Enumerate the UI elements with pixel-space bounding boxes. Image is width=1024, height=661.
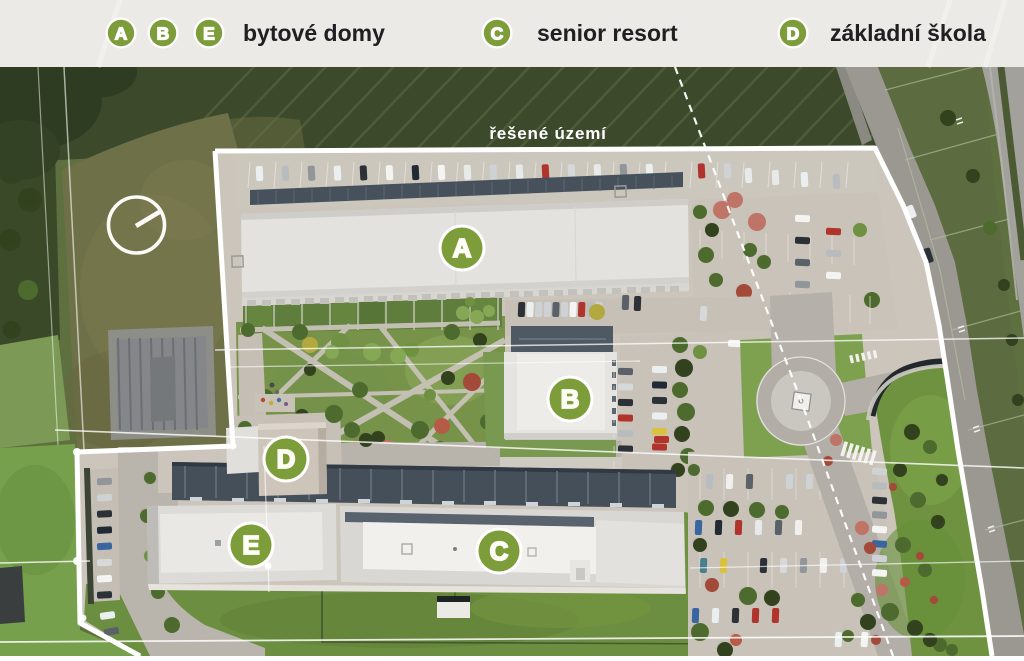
svg-text:bytové domy: bytové domy <box>243 20 385 46</box>
svg-text:D: D <box>787 24 800 44</box>
svg-text:B: B <box>561 384 580 414</box>
svg-text:A: A <box>115 24 128 44</box>
svg-text:C: C <box>491 24 504 44</box>
svg-text:E: E <box>242 530 259 560</box>
svg-text:A: A <box>453 233 472 263</box>
svg-text:E: E <box>203 24 215 44</box>
svg-text:B: B <box>157 24 170 44</box>
svg-text:D: D <box>277 444 296 474</box>
svg-text:řešené území: řešené území <box>489 124 607 143</box>
svg-text:senior resort: senior resort <box>537 20 678 46</box>
svg-text:C: C <box>490 536 509 566</box>
svg-text:základní škola: základní škola <box>830 20 986 46</box>
